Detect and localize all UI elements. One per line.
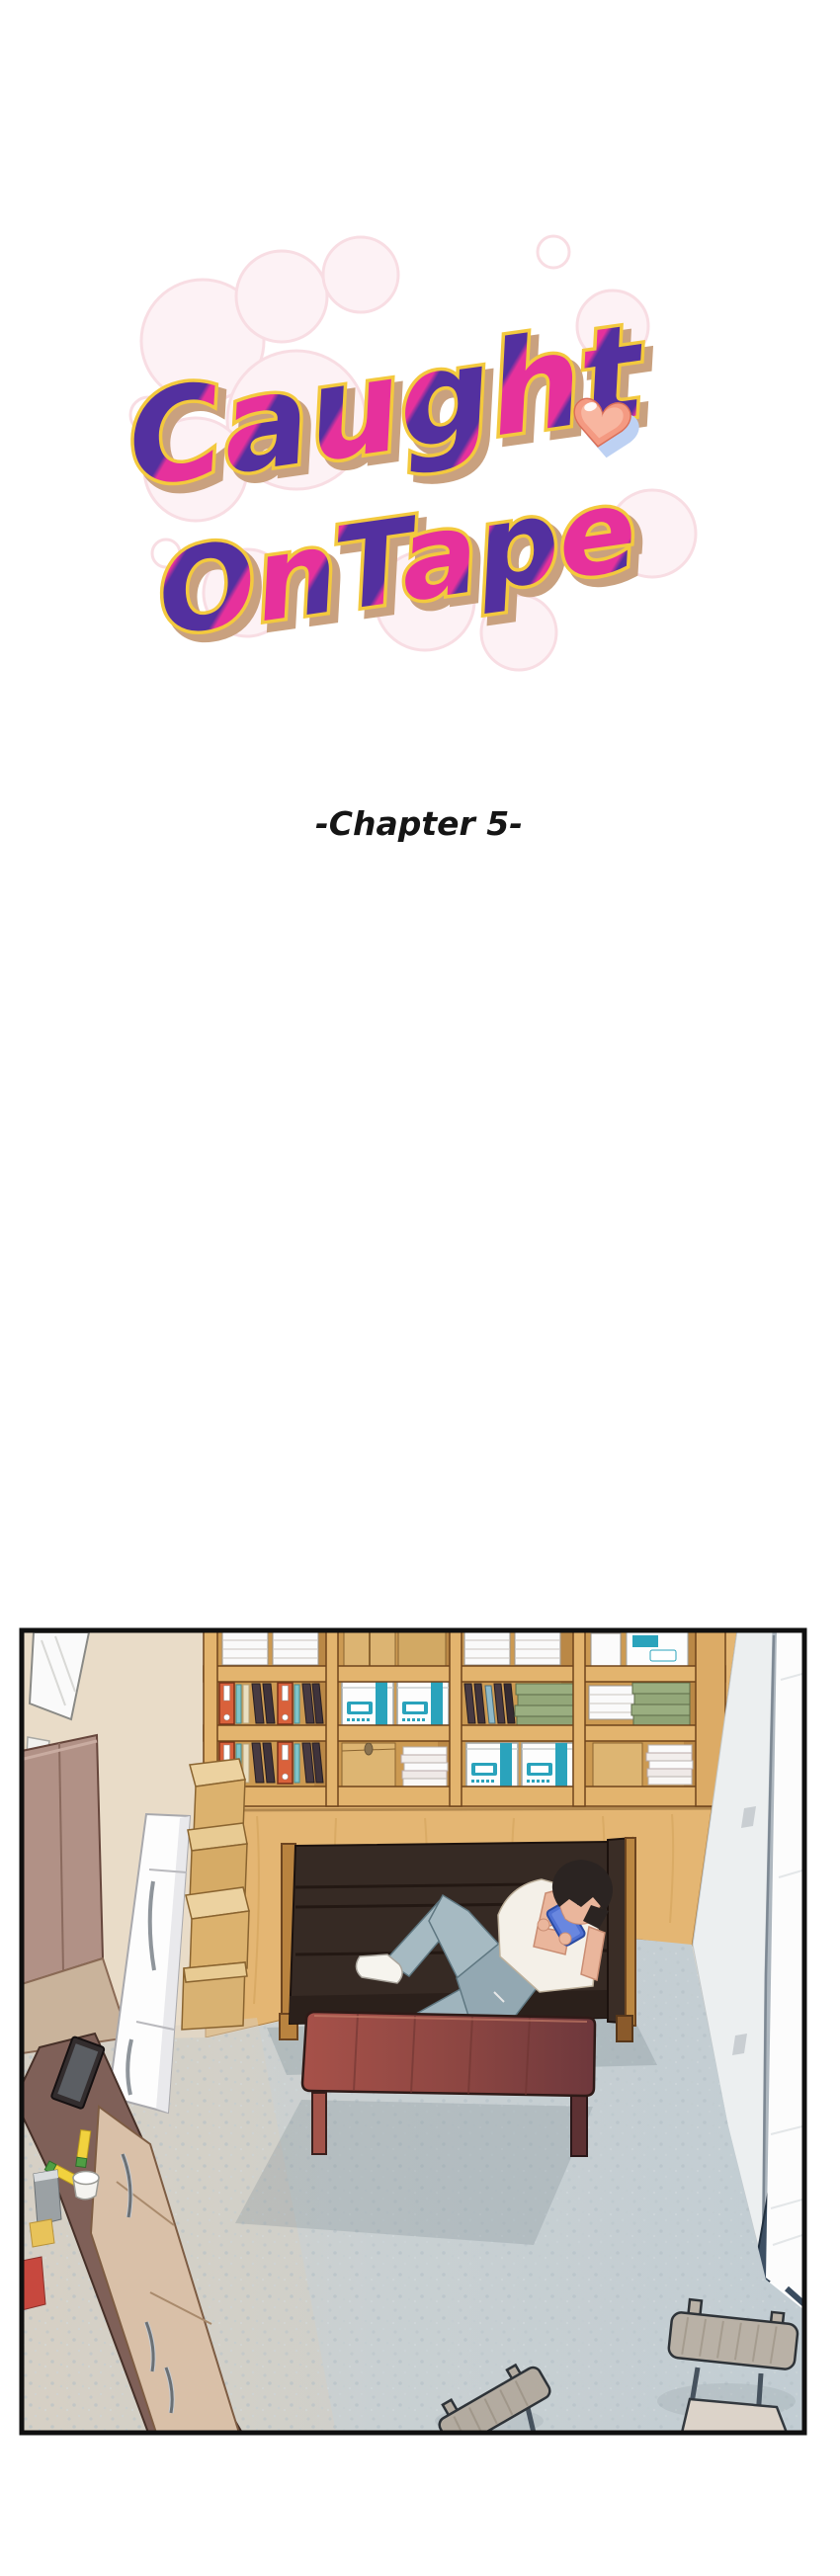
chapter-heading: -Chapter 5- xyxy=(315,804,523,843)
title-logo: Caught Caught OnTape OnTape xyxy=(119,236,696,671)
webtoon-page: Caught Caught OnTape OnTape -Chapter 5- xyxy=(0,0,840,2576)
red-item xyxy=(22,2257,45,2310)
yellow-item xyxy=(30,2219,54,2247)
couch xyxy=(280,1838,635,2041)
cup xyxy=(73,2172,99,2200)
bookshelf xyxy=(204,1630,725,1806)
page-canvas: Caught Caught OnTape OnTape -Chapter 5- xyxy=(0,0,840,2576)
comic-panel xyxy=(22,1630,804,2451)
